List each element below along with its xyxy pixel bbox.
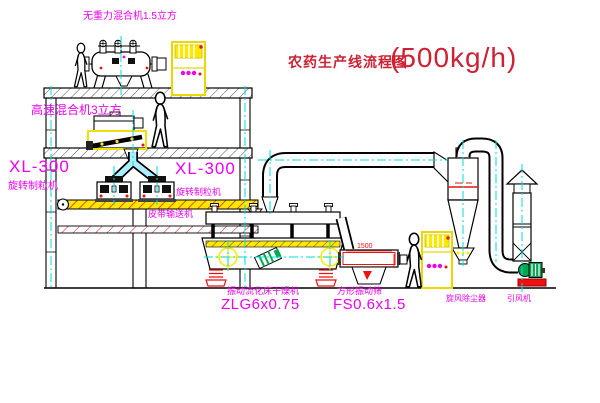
label-gravity-mixer: 无重力混合机1.5立方 [83, 12, 177, 22]
flow-diagram-canvas: 农药生产线流程图 (500kg/h) 无重力混合机1.5立方 高速混合机3立方 … [0, 0, 600, 403]
mid-floor-slab [44, 148, 252, 158]
dryer-spring-mounts [206, 270, 336, 286]
worker-ground [406, 233, 421, 287]
square-sieve [338, 218, 407, 284]
label-cyclone: 旋风除尘器 [446, 295, 486, 303]
exhaust-duct [262, 152, 450, 212]
worker-top-floor [74, 43, 87, 86]
label-fan: 引风机 [507, 295, 531, 303]
label-granulator-left-name: 旋转制粒机 [8, 182, 58, 192]
sieve-dimension-text: 1500 [357, 243, 373, 250]
label-granulator-right-name: 旋转制粒机 [176, 188, 221, 197]
label-sieve-name: 方形振动筛 [337, 287, 382, 296]
label-high-speed-mixer: 高速混合机3立方 [31, 104, 122, 116]
mixer-valve-ports [100, 40, 136, 53]
control-cabinet-bottom [422, 232, 452, 288]
gravity-free-mixer [84, 40, 166, 88]
label-granulator-right-model: XL-300 [175, 160, 236, 177]
fluid-bed-dryer [202, 204, 344, 287]
label-belt-conveyor: 皮带输送机 [148, 210, 193, 219]
label-granulator-left-model: XL-300 [9, 158, 70, 175]
worker-mid-floor [152, 92, 168, 146]
control-cabinet-top [172, 42, 205, 95]
top-floor-slab [44, 88, 252, 98]
lower-beam [58, 226, 258, 233]
diagram-capacity: (500kg/h) [390, 42, 517, 74]
cabinet-indicator-light [199, 45, 203, 49]
label-sieve-model: FS0.6x1.5 [333, 297, 406, 312]
cabinet-indicator-light [446, 236, 449, 239]
label-dryer-name: 振动流化床干燥机 [227, 287, 299, 296]
label-dryer-model: ZLG6x0.75 [221, 297, 300, 312]
